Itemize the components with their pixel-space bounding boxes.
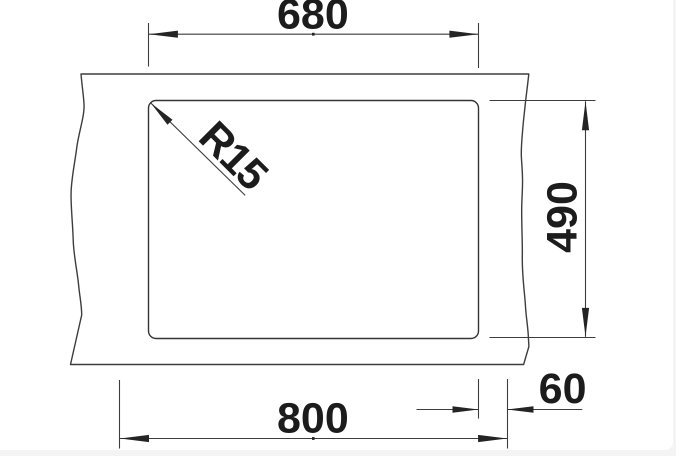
svg-text:60: 60 — [539, 365, 587, 413]
svg-text:800: 800 — [277, 394, 349, 442]
svg-text:490: 490 — [539, 181, 587, 253]
svg-text:680: 680 — [277, 0, 349, 39]
svg-text:R15: R15 — [190, 112, 277, 199]
